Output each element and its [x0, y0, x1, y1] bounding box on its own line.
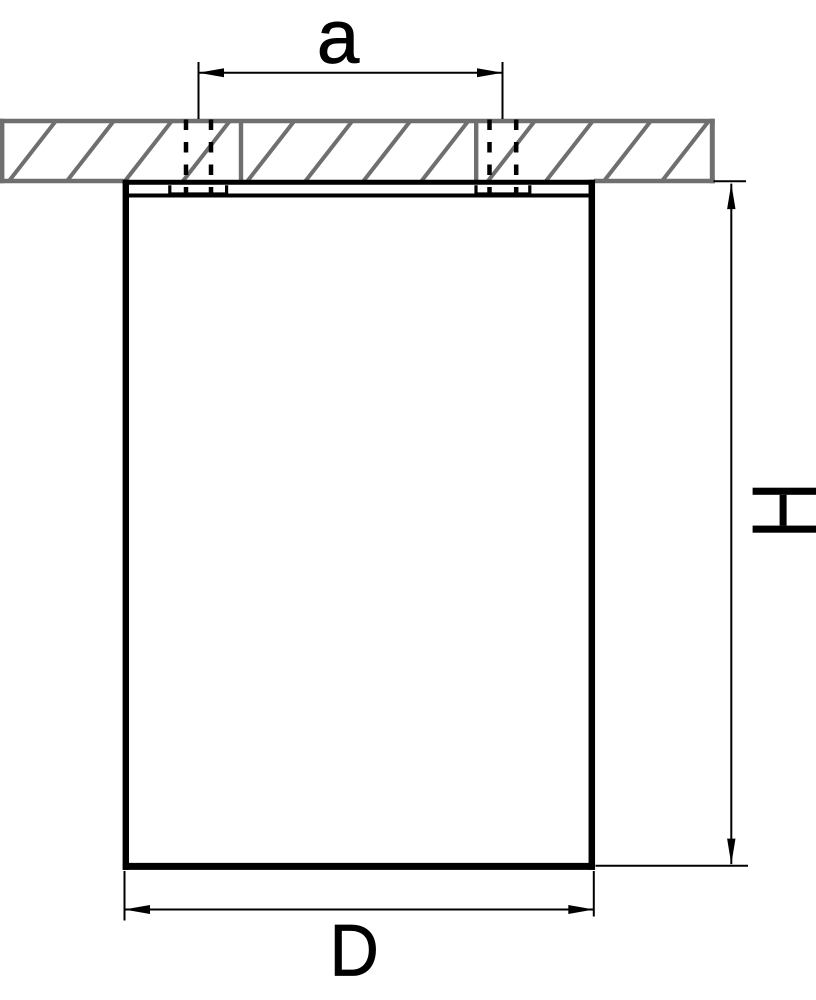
svg-text:a: a	[317, 0, 360, 80]
svg-text:D: D	[330, 909, 379, 991]
